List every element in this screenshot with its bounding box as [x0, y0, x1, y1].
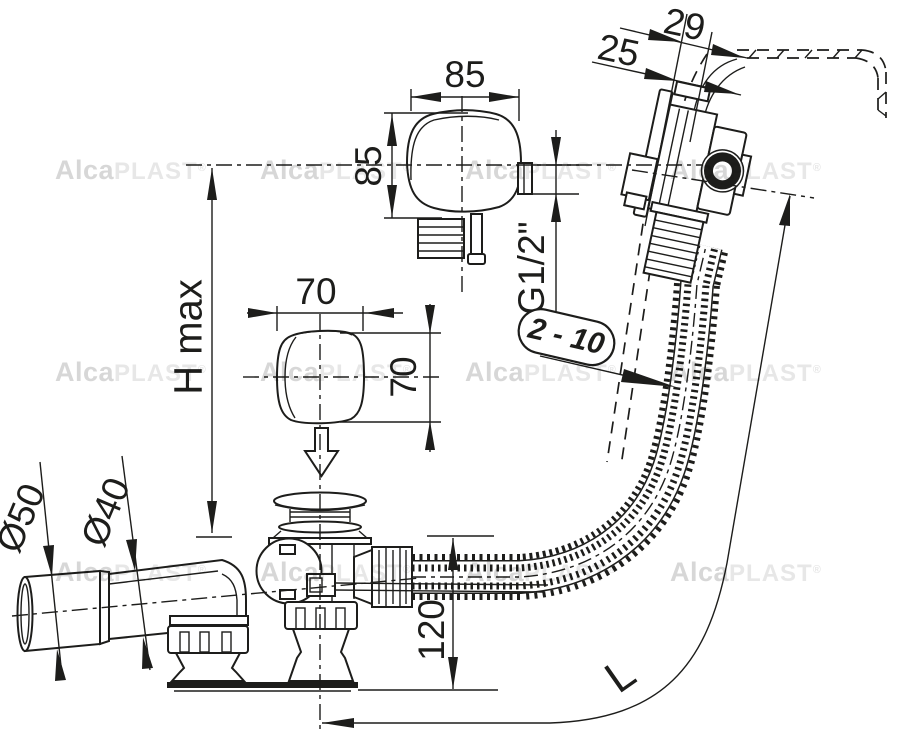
- dimension-height-max: H max: [167, 168, 232, 537]
- dim-hose-length-label: L: [596, 649, 644, 703]
- dim-trim-height-label: 70: [383, 356, 424, 397]
- dim-trim-width-label: 70: [295, 271, 336, 312]
- bath-drain-overflow-diagram: 85 85 70 70: [0, 0, 906, 743]
- base-flange: [167, 682, 358, 691]
- dim-overflow-width-label: 85: [444, 54, 485, 95]
- assembly-direction-arrow: [305, 428, 338, 476]
- panel-thickness-callout: 2 - 10: [514, 305, 676, 387]
- dim-rim-offset-outer-label: 29: [660, 0, 709, 49]
- corrugated-hose: [412, 246, 706, 577]
- dim-drain-height-label: 120: [411, 599, 452, 661]
- technical-drawing-page: 85 85 70 70: [0, 0, 906, 743]
- overflow-side-outlet: [518, 163, 532, 194]
- overflow-fitting: [606, 75, 763, 290]
- dim-rim-offset-inner-label: 25: [594, 26, 643, 75]
- dimension-trim-width: 70: [247, 271, 403, 331]
- dim-thread-label: G1/2": [511, 221, 552, 314]
- dim-overflow-height-label: 85: [348, 145, 389, 186]
- dim-height-max-label: H max: [167, 279, 211, 395]
